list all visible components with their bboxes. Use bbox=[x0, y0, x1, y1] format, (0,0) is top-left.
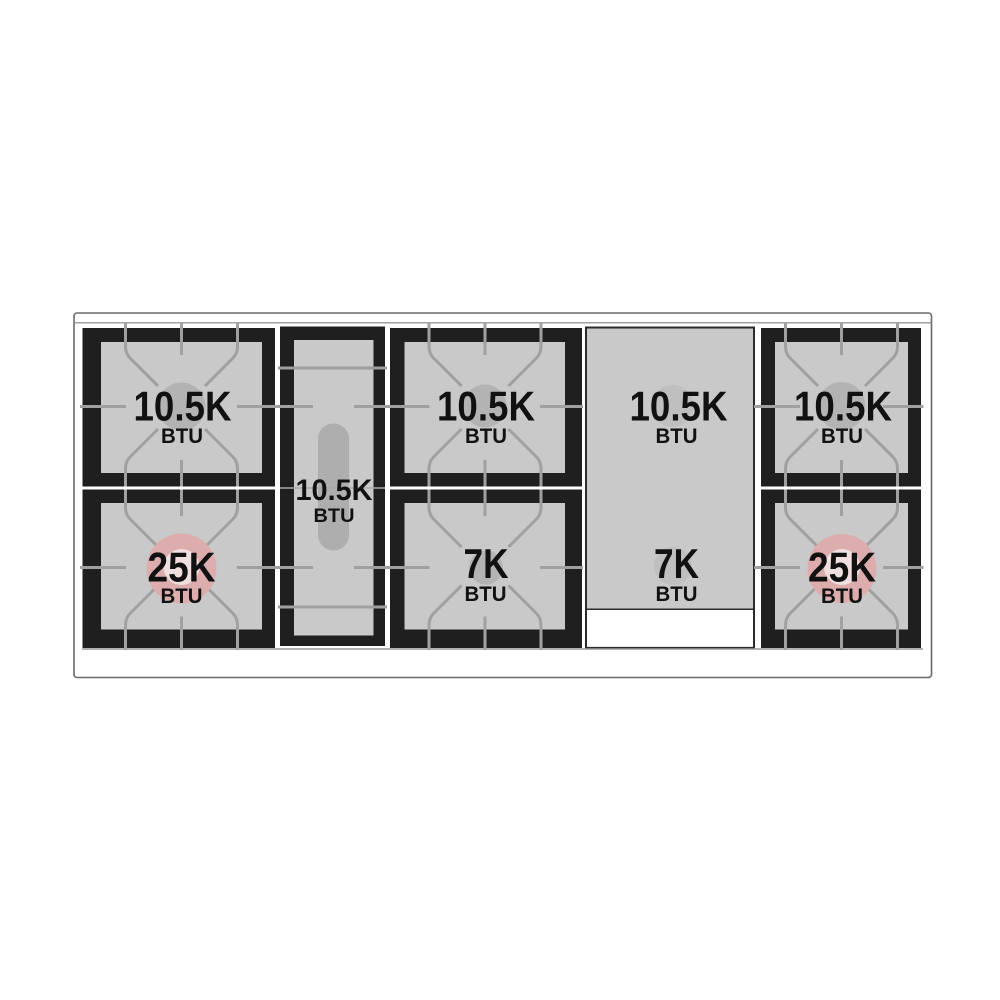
svg-text:BTU: BTU bbox=[821, 585, 863, 608]
svg-text:25K: 25K bbox=[148, 544, 216, 591]
svg-text:BTU: BTU bbox=[656, 583, 698, 606]
svg-text:BTU: BTU bbox=[656, 425, 698, 448]
svg-text:BTU: BTU bbox=[465, 425, 507, 448]
svg-text:7K: 7K bbox=[464, 540, 509, 587]
svg-text:BTU: BTU bbox=[465, 583, 507, 606]
svg-text:10.5K: 10.5K bbox=[630, 383, 728, 430]
svg-text:10.5K: 10.5K bbox=[134, 383, 232, 430]
svg-text:10.5K: 10.5K bbox=[437, 383, 535, 430]
svg-text:25K: 25K bbox=[808, 544, 876, 591]
svg-text:BTU: BTU bbox=[821, 425, 863, 448]
svg-text:10.5K: 10.5K bbox=[794, 383, 892, 430]
svg-text:10.5K: 10.5K bbox=[296, 474, 373, 507]
svg-text:BTU: BTU bbox=[314, 506, 355, 527]
svg-text:BTU: BTU bbox=[161, 425, 203, 448]
svg-text:BTU: BTU bbox=[161, 585, 203, 608]
svg-text:7K: 7K bbox=[654, 540, 699, 587]
